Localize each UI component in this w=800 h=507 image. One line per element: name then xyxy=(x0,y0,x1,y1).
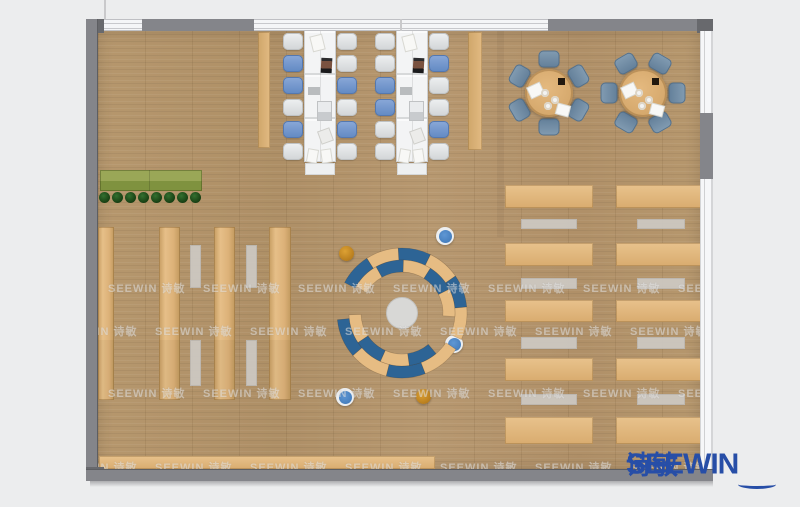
exterior-line xyxy=(104,0,106,19)
reading-bench xyxy=(246,245,257,288)
wall-bottom xyxy=(86,469,713,481)
desk-chair xyxy=(429,77,449,94)
desk-chair xyxy=(429,33,449,50)
planter-box xyxy=(100,170,202,191)
table-item-plate xyxy=(645,96,653,104)
side-shelf xyxy=(258,32,270,148)
desk-chair xyxy=(283,143,303,160)
desk-chair xyxy=(337,33,357,50)
round-table-chair xyxy=(539,119,560,136)
round-table-chair xyxy=(601,83,618,104)
desk-chair xyxy=(283,121,303,138)
table-item-plate xyxy=(544,102,552,110)
book-shelf xyxy=(159,227,180,400)
reading-bench xyxy=(246,340,257,386)
bottom-shelf xyxy=(99,456,435,469)
orange-stool xyxy=(416,389,431,404)
plant xyxy=(164,192,175,203)
blue-stool xyxy=(339,391,352,404)
table-item-dark xyxy=(558,78,565,85)
study-table-end xyxy=(397,163,427,175)
desk-chair xyxy=(375,143,395,160)
bench-strip xyxy=(521,337,577,349)
desk-chair xyxy=(429,55,449,72)
desk-chair xyxy=(337,121,357,138)
desk-chair xyxy=(429,99,449,116)
table-item-plate xyxy=(638,102,646,110)
bench-strip xyxy=(637,219,685,229)
blue-stool xyxy=(439,230,452,243)
round-table-chair xyxy=(539,51,560,68)
blue-stool xyxy=(448,338,461,351)
bench-strip xyxy=(637,337,685,349)
wall-shadow xyxy=(90,481,713,487)
logo-chinese-name: 诗敏 xyxy=(626,452,678,478)
plant xyxy=(112,192,123,203)
wall-left xyxy=(86,19,98,481)
desk-item-laptop_dark xyxy=(413,58,425,74)
desk-item-laptop_light xyxy=(318,102,331,120)
desk-chair xyxy=(375,33,395,50)
desk-row xyxy=(616,300,701,322)
study-table xyxy=(396,30,428,162)
logo-swoosh xyxy=(738,480,776,489)
desk-chair xyxy=(375,99,395,116)
desk-chair xyxy=(337,143,357,160)
seewin-logo: SEEWIN 诗敏 xyxy=(626,450,798,498)
floorplan-canvas: SEEWIN 诗敏SEEWIN 诗敏SEEWIN 诗敏SEEWIN 诗敏SEEW… xyxy=(0,0,800,507)
desk-row xyxy=(616,243,701,266)
bench-strip xyxy=(637,394,685,405)
orange-stool xyxy=(339,246,354,261)
round-table-chair xyxy=(669,83,686,104)
desk-chair xyxy=(337,99,357,116)
book-shelf xyxy=(269,227,291,400)
book-shelf xyxy=(98,227,114,400)
bench-strip xyxy=(521,394,577,405)
desk-row xyxy=(505,300,593,322)
desk-chair xyxy=(429,143,449,160)
desk-row xyxy=(616,185,701,208)
desk-row xyxy=(505,417,593,444)
desk-row xyxy=(616,358,701,381)
desk-row xyxy=(616,417,701,444)
desk-chair xyxy=(337,55,357,72)
bench-strip xyxy=(637,278,685,289)
desk-row xyxy=(505,185,593,208)
desk-chair xyxy=(283,33,303,50)
side-shelf xyxy=(468,32,482,150)
plant xyxy=(125,192,136,203)
reading-bench xyxy=(190,245,201,288)
desk-chair xyxy=(375,121,395,138)
desk-item-paper xyxy=(321,149,332,162)
study-table xyxy=(304,30,336,162)
desk-row xyxy=(505,358,593,381)
floor-shade-band xyxy=(497,31,504,237)
desk-chair xyxy=(283,99,303,116)
plant xyxy=(151,192,162,203)
window-right xyxy=(700,31,713,469)
plant xyxy=(99,192,110,203)
desk-item-laptop_dark xyxy=(321,58,333,74)
plant xyxy=(190,192,201,203)
desk-chair xyxy=(375,55,395,72)
desk-item-laptop_light xyxy=(410,102,423,120)
wall-top-segment xyxy=(142,19,254,31)
desk-chair xyxy=(283,55,303,72)
reading-bench xyxy=(190,340,201,386)
desk-chair xyxy=(375,77,395,94)
table-item-plate xyxy=(551,96,559,104)
book-shelf xyxy=(214,227,235,400)
wall-top-segment xyxy=(548,19,697,31)
window-top xyxy=(104,19,142,31)
desk-chair xyxy=(429,121,449,138)
table-item-plate xyxy=(541,89,549,97)
desk-chair xyxy=(283,77,303,94)
desk-item-pad xyxy=(308,87,320,95)
desk-row xyxy=(505,243,593,266)
bench-strip xyxy=(521,219,577,229)
study-table-end xyxy=(305,163,335,175)
window-mullion xyxy=(400,19,402,31)
bench-strip xyxy=(521,278,577,289)
table-item-dark xyxy=(652,78,659,85)
desk-chair xyxy=(337,77,357,94)
desk-item-pad xyxy=(400,87,412,95)
wall-right-segment xyxy=(700,113,713,179)
desk-item-paper xyxy=(413,149,424,162)
plant xyxy=(138,192,149,203)
plant xyxy=(177,192,188,203)
table-item-plate xyxy=(635,89,643,97)
